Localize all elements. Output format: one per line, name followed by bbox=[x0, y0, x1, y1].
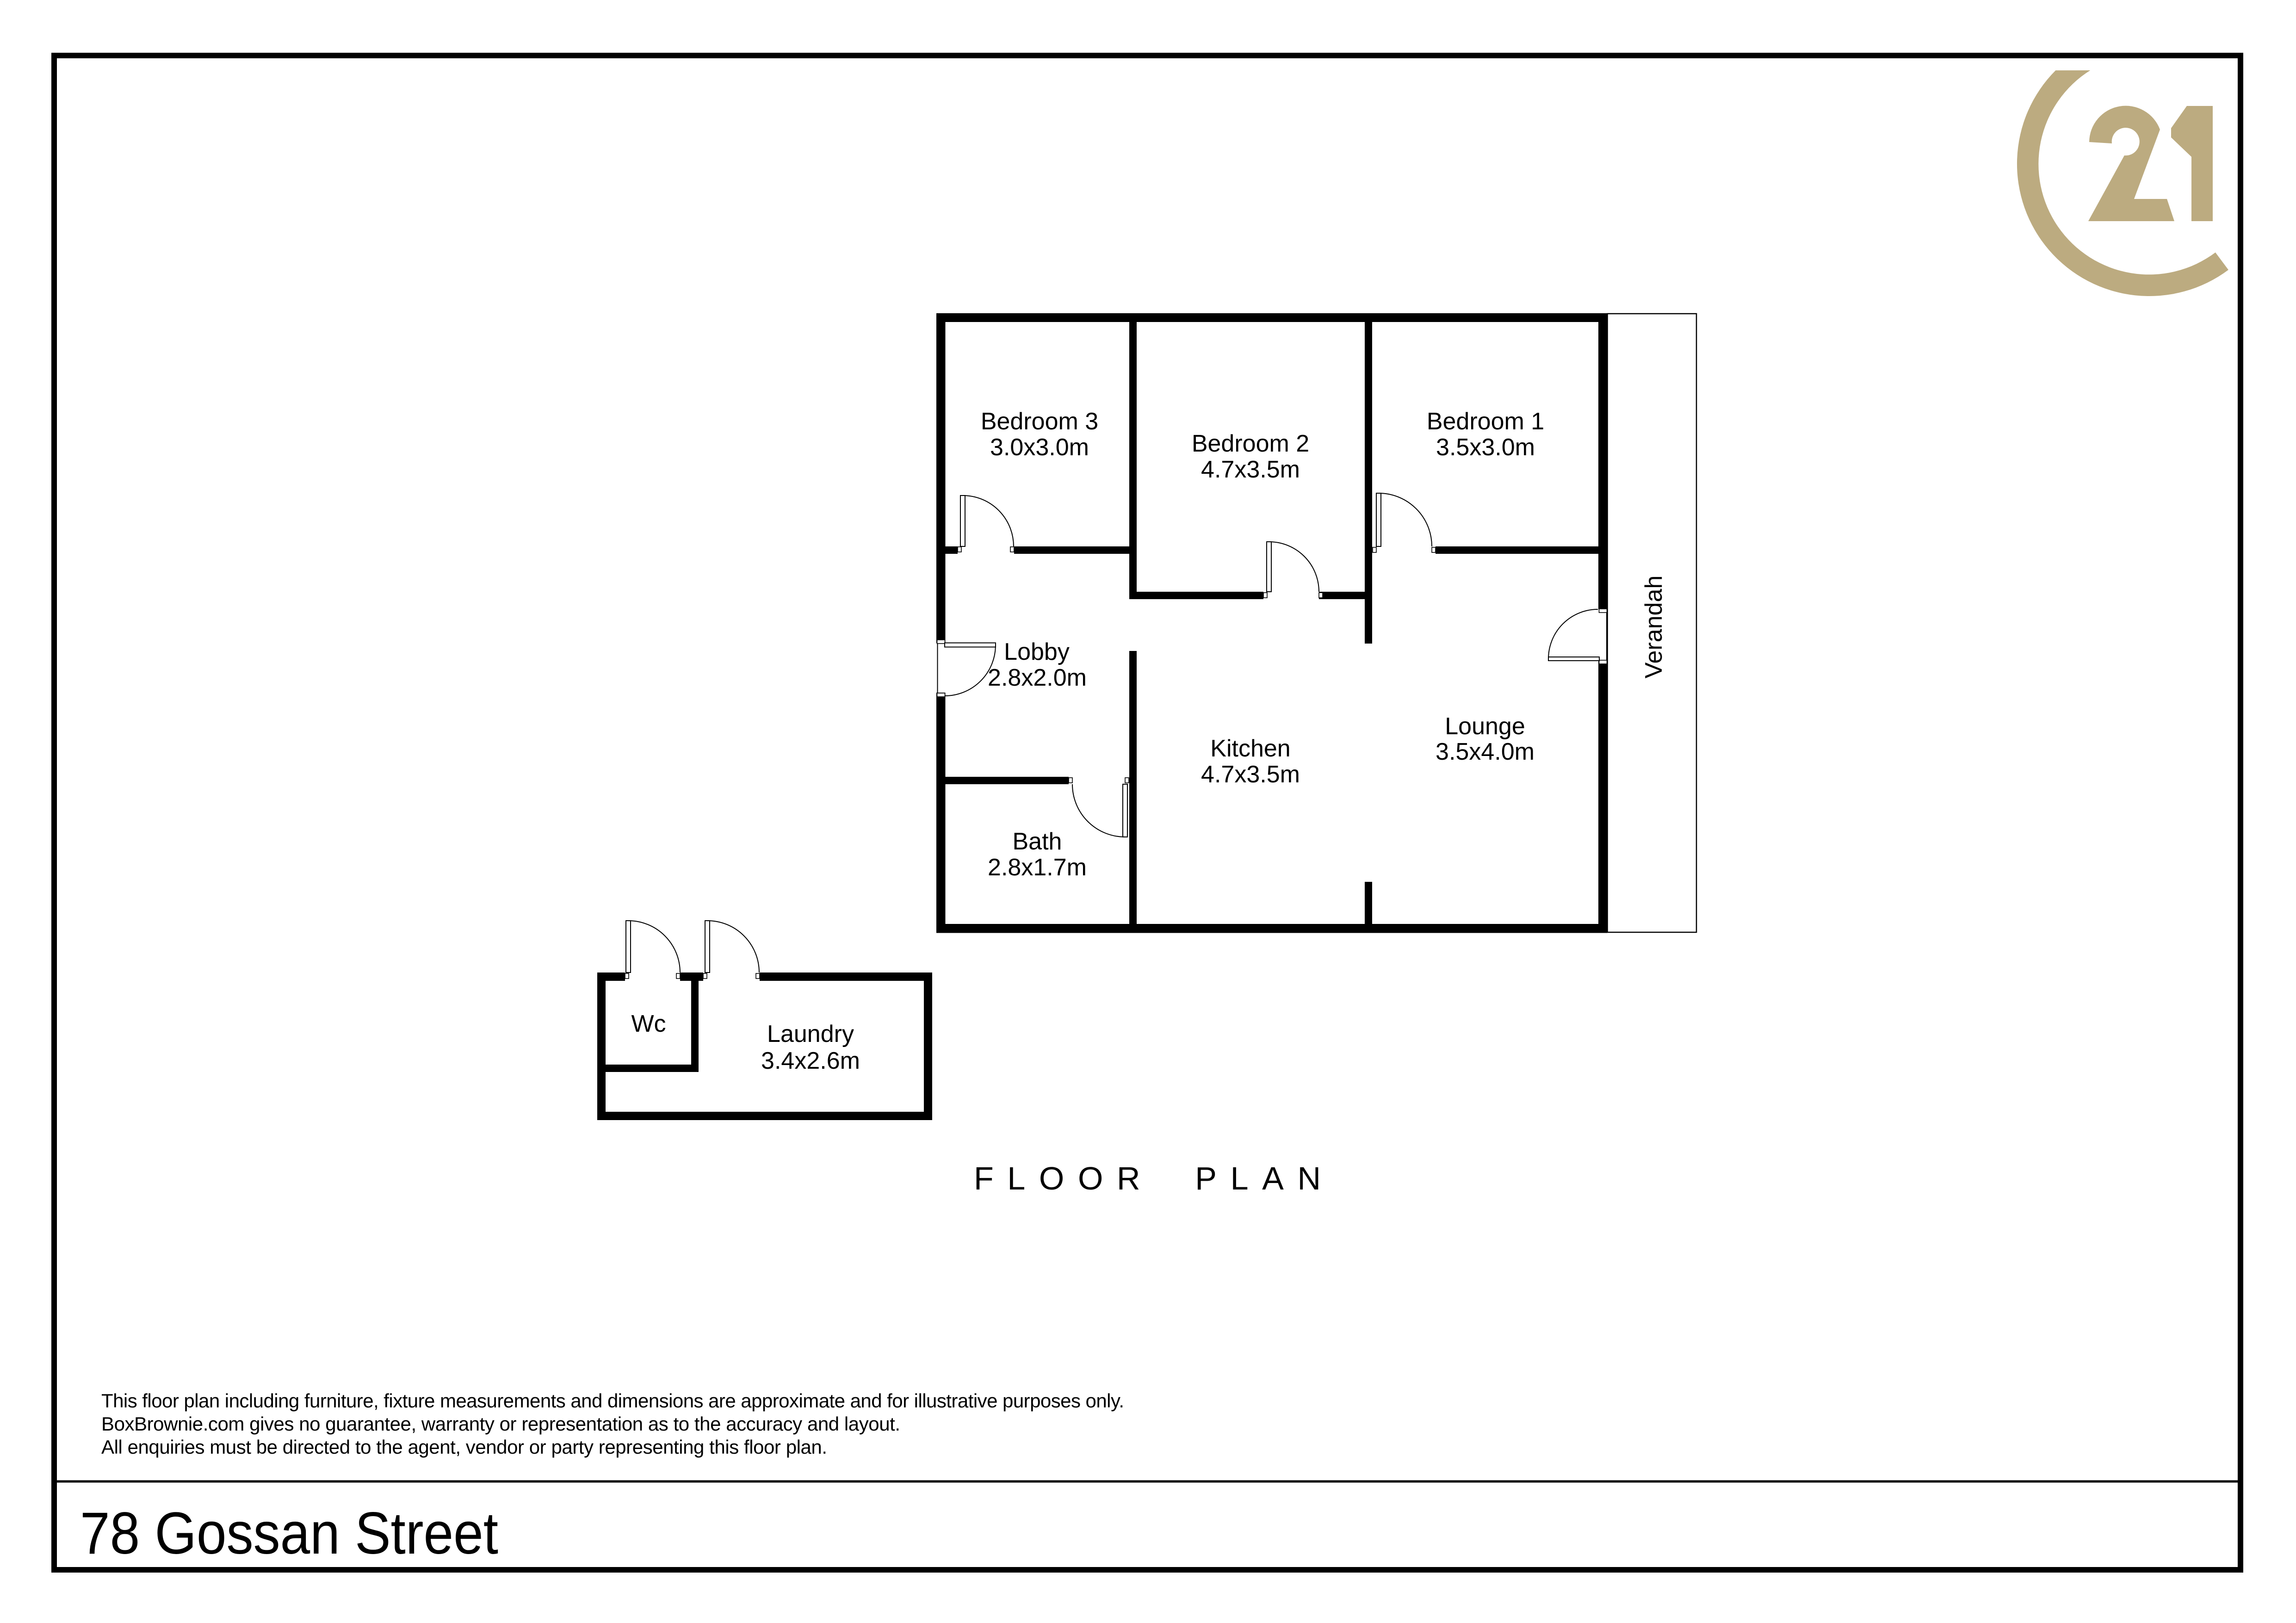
svg-text:Bedroom 2: Bedroom 2 bbox=[1192, 430, 1309, 457]
svg-text:3.5x4.0m: 3.5x4.0m bbox=[1436, 738, 1535, 765]
svg-text:Verandah: Verandah bbox=[1640, 576, 1667, 679]
svg-text:Lounge: Lounge bbox=[1445, 713, 1525, 740]
svg-text:Bedroom 3: Bedroom 3 bbox=[981, 408, 1098, 435]
svg-text:4.7x3.5m: 4.7x3.5m bbox=[1201, 761, 1300, 788]
svg-text:3.4x2.6m: 3.4x2.6m bbox=[761, 1047, 860, 1074]
svg-text:Wc: Wc bbox=[631, 1010, 666, 1037]
svg-text:4.7x3.5m: 4.7x3.5m bbox=[1201, 456, 1300, 483]
svg-text:Bath: Bath bbox=[1013, 828, 1062, 855]
svg-text:All enquiries must be directed: All enquiries must be directed to the ag… bbox=[101, 1436, 827, 1458]
svg-text:Laundry: Laundry bbox=[767, 1021, 854, 1047]
svg-text:Bedroom 1: Bedroom 1 bbox=[1427, 408, 1544, 435]
svg-text:BoxBrownie.com gives no guaran: BoxBrownie.com gives no guarantee, warra… bbox=[101, 1413, 900, 1435]
svg-text:2.8x1.7m: 2.8x1.7m bbox=[988, 854, 1087, 881]
svg-text:2.8x2.0m: 2.8x2.0m bbox=[988, 664, 1087, 691]
svg-text:Lobby: Lobby bbox=[1004, 638, 1070, 665]
svg-text:Kitchen: Kitchen bbox=[1210, 735, 1290, 762]
svg-text:3.5x3.0m: 3.5x3.0m bbox=[1436, 434, 1535, 461]
svg-text:78 Gossan Street: 78 Gossan Street bbox=[80, 1500, 498, 1567]
svg-text:3.0x3.0m: 3.0x3.0m bbox=[990, 434, 1089, 461]
svg-text:This floor plan including furn: This floor plan including furniture, fix… bbox=[101, 1390, 1124, 1412]
